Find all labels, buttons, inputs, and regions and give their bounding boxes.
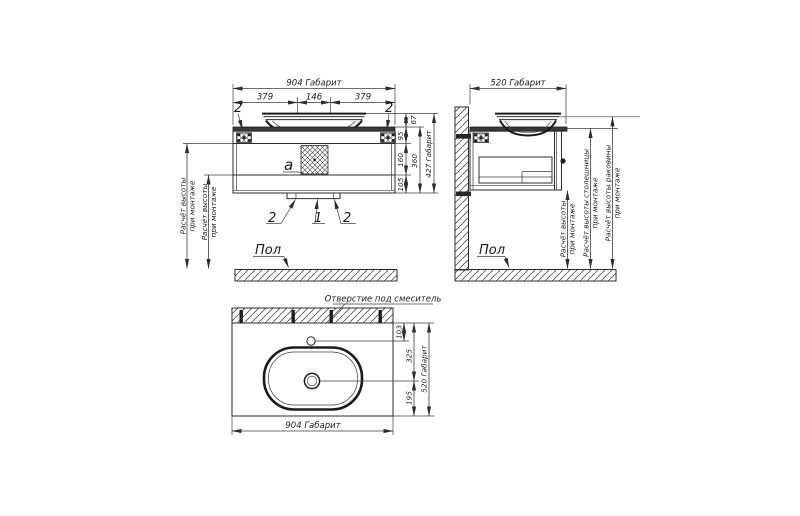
sv-floor-label: Пол [479,243,505,258]
fv-label-a: a [284,156,293,174]
corner-bracket-right [381,133,396,143]
fv-cabinet: a [233,127,396,199]
sv-right-dimensions: Расчёт высоты при монтаже Расчёт высоты … [559,117,641,269]
sv-floor-strip [455,270,616,282]
fv-dim-360: 360 [410,154,419,168]
sv-calc-height-line2: при монтаже [568,203,577,254]
sv-calc-basin-line2: при монтаже [613,167,622,218]
fv-siphon-center-dot [313,159,316,162]
sv-wall-pin-bottom [456,192,471,197]
fv-dim-95: 95 [396,131,405,141]
sv-door-handle [560,158,565,163]
tv-mount-mark-2 [292,310,295,323]
fv-dim-379-right: 379 [355,93,371,103]
tv-dim-325: 325 [405,349,414,363]
sv-floor-label-group: Пол [477,243,509,268]
fv-countertop-edge [233,127,395,131]
sv-corner-bracket [474,133,489,143]
corner-bracket-left [237,133,252,143]
sv-calc-countertop-line2: при монтаже [591,177,600,228]
front-view: 904 Габарит 379 146 379 2 2 [179,79,439,282]
fv-calc-outer-line1: Расчёт высоты [179,177,188,234]
fv-dim-overall-height: 427 Габарит [424,130,433,178]
fv-floor: Пол [235,243,397,281]
fv-dim-overall-width: 904 Габарит [286,79,342,89]
tv-bottom-dimension: 904 Габарит [232,417,393,436]
tv-faucet-hole-label: Отверстие под смеситель [325,295,442,305]
fv-dim-160: 160 [396,153,405,167]
tv-mount-mark-3 [330,310,333,323]
fv-calc-outer-line2: при монтаже [188,180,197,231]
tv-mount-mark-4 [379,310,382,323]
fv-calc-inner-line2: при монтаже [209,186,218,237]
tv-dim-195: 195 [405,391,414,405]
fv-dim-67: 67 [409,115,418,125]
sv-countertop-edge [470,127,567,131]
fv-bracket-callouts: 2 2 [234,101,393,130]
sv-calc-height-line1: Расчёт высоты [559,200,568,257]
sv-wall [455,107,469,270]
fv-floor-strip [235,270,397,282]
drawing-canvas: 904 Габарит 379 146 379 2 2 [0,0,800,516]
fv-bottom-callouts: 2 1 2 [266,200,356,227]
fv-top-dimensions: 904 Габарит 379 146 379 [233,79,395,126]
vanity-technical-drawing: 904 Габарит 379 146 379 2 2 [0,0,800,516]
fv-left-dimensions: Расчёт высоты при монтаже Расчёт высоты … [179,144,234,269]
fv-dim-146: 146 [306,93,323,103]
side-view: 520 Габарит [455,79,640,282]
fv-floor-label: Пол [255,243,281,258]
fv-dim-379-left: 379 [257,93,273,103]
tv-dim-overall-width: 904 Габарит [285,421,341,431]
top-view: Отверстие под смеситель 103 325 195 52 [232,295,441,436]
sv-calc-basin-line1: Расчёт высоты раковины [604,144,613,241]
fv-bottom-plinth [287,193,340,199]
tv-dim-overall-depth: 520 Габарит [420,345,429,393]
tv-wall-strip [232,308,393,323]
sv-calc-countertop-line1: Расчёт высоты столешницы [582,149,591,257]
tv-dim-103: 103 [395,325,404,339]
sv-cabinet [456,127,567,196]
fv-calc-inner-line1: Расчёт высоты [200,183,209,240]
sv-top-dimension: 520 Габарит [470,79,566,125]
tv-mount-mark-1 [240,310,243,323]
sv-wall-pin-top [456,134,471,139]
sv-dim-overall-depth: 520 Габарит [490,79,546,89]
fv-dim-105: 105 [396,177,405,191]
